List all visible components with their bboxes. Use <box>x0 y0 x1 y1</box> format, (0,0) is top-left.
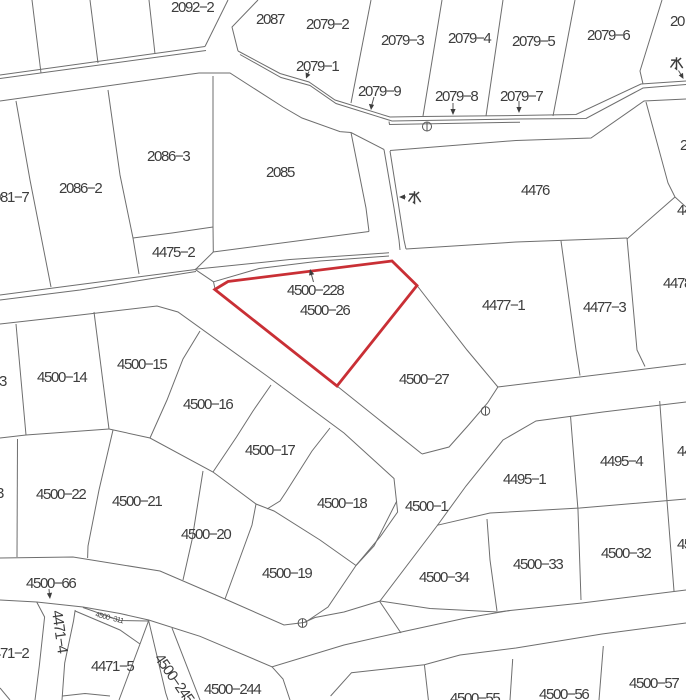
svg-text:2079−8: 2079−8 <box>435 88 478 105</box>
svg-text:4475−2: 4475−2 <box>152 244 195 261</box>
svg-text:4500−33: 4500−33 <box>513 556 563 573</box>
svg-text:44: 44 <box>677 202 686 219</box>
svg-text:4500−17: 4500−17 <box>245 442 295 459</box>
svg-text:4471−5: 4471−5 <box>91 658 134 675</box>
svg-text:2092−2: 2092−2 <box>171 0 214 16</box>
svg-text:4500−19: 4500−19 <box>262 565 312 582</box>
svg-text:4500−14: 4500−14 <box>37 369 87 386</box>
svg-text:2081−7: 2081−7 <box>0 189 29 206</box>
svg-text:4500−32: 4500−32 <box>601 545 651 562</box>
svg-text:2086−2: 2086−2 <box>59 180 102 197</box>
svg-text:2079−3: 2079−3 <box>381 32 424 49</box>
svg-text:20: 20 <box>670 13 685 30</box>
svg-text:44: 44 <box>677 443 686 460</box>
svg-text:4500−26: 4500−26 <box>300 302 350 319</box>
svg-text:4500−16: 4500−16 <box>183 396 233 413</box>
svg-text:4500−57: 4500−57 <box>629 675 679 692</box>
svg-text:4500−21: 4500−21 <box>112 493 162 510</box>
svg-text:4500−15: 4500−15 <box>117 356 167 373</box>
svg-text:4477−1: 4477−1 <box>482 297 525 314</box>
svg-text:2079−1: 2079−1 <box>296 58 339 75</box>
svg-text:4500−56: 4500−56 <box>539 686 589 700</box>
svg-text:4500−1: 4500−1 <box>405 498 448 515</box>
svg-text:2079−9: 2079−9 <box>358 83 401 100</box>
svg-text:4477−3: 4477−3 <box>583 299 626 316</box>
svg-text:4500−55: 4500−55 <box>450 690 500 700</box>
svg-text:4500−34: 4500−34 <box>419 569 469 586</box>
svg-text:4476: 4476 <box>521 182 550 199</box>
svg-text:2079−4: 2079−4 <box>448 30 491 47</box>
svg-text:2079−2: 2079−2 <box>306 16 349 33</box>
svg-text:2087: 2087 <box>256 11 285 28</box>
svg-text:45: 45 <box>677 536 686 553</box>
svg-text:4478: 4478 <box>663 275 686 292</box>
svg-text:4495−4: 4495−4 <box>600 453 643 470</box>
svg-text:4500−22: 4500−22 <box>36 486 86 503</box>
svg-text:4495−1: 4495−1 <box>503 471 546 488</box>
svg-text:13: 13 <box>0 373 7 390</box>
svg-text:2085: 2085 <box>266 164 295 181</box>
svg-text:2086−3: 2086−3 <box>147 148 190 165</box>
svg-text:4500−20: 4500−20 <box>181 526 231 543</box>
svg-text:4500−244: 4500−244 <box>204 681 261 698</box>
svg-text:20: 20 <box>680 137 686 154</box>
svg-text:4500−27: 4500−27 <box>399 371 449 388</box>
svg-text:4500−228: 4500−228 <box>287 282 344 299</box>
svg-text:4500−66: 4500−66 <box>26 575 76 592</box>
svg-text:2079−5: 2079−5 <box>512 33 555 50</box>
svg-text:4500−18: 4500−18 <box>317 495 367 512</box>
svg-text:2079−6: 2079−6 <box>587 27 630 44</box>
svg-text:2079−7: 2079−7 <box>500 88 543 105</box>
svg-text:4471−2: 4471−2 <box>0 645 29 662</box>
